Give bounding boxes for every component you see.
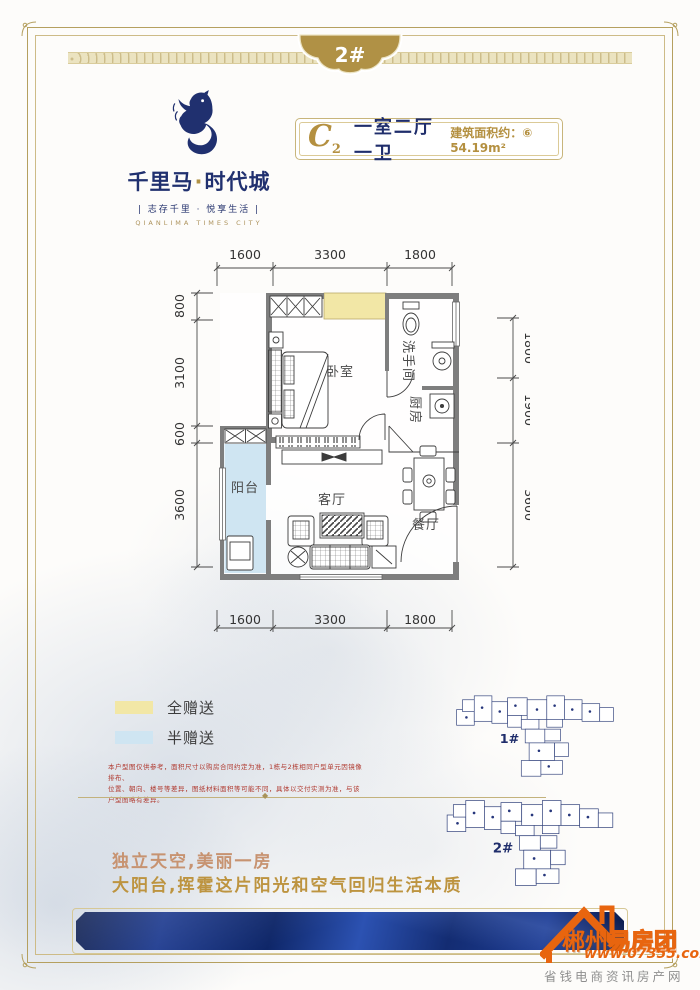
horse-logo-icon xyxy=(170,90,228,158)
legend-swatch-half xyxy=(115,731,153,744)
watermark-url: www.07355.com xyxy=(584,946,700,962)
floorplan: 1600 3300 1800 1600 3300 1800 800 3100 6… xyxy=(160,240,530,650)
siteplan-label-2: 2# xyxy=(493,841,514,856)
dim-bottom-3: 1800 xyxy=(404,612,436,627)
brand-name-english: QIANLIMA TIMES CITY xyxy=(118,219,280,227)
tagline-line-1: 独立天空,美丽一房 xyxy=(112,847,272,872)
unit-title-plaque: C2 一室二厅一卫 建筑面积约：⑥ 54.19m² xyxy=(295,118,563,160)
room-label-dining: 餐厅 xyxy=(412,517,440,533)
room-label-bedroom: 卧室 xyxy=(326,364,354,380)
watermark-slogan: 省钱电商资讯房产网 xyxy=(544,966,684,985)
frame-corner-ornament xyxy=(21,21,37,37)
siteplan-building-1: 1# xyxy=(452,688,620,786)
dim-left-3: 600 xyxy=(172,422,187,446)
badge-label: 2# xyxy=(335,43,366,67)
disclaimer-text: 本户型图仅供参考，面积尺寸以购房合同约定为准，1栋与2栋相同户型单元因镜像排布、… xyxy=(108,762,366,806)
room-label-balcony: 阳台 xyxy=(231,481,259,496)
dim-bottom-1: 1600 xyxy=(229,612,261,627)
dim-bottom-2: 3300 xyxy=(314,612,346,627)
legend-item-half: 半赠送 xyxy=(115,727,215,748)
brand-slogan: | 志存千里 · 悦享生活 | xyxy=(118,202,280,215)
frame-corner-ornament xyxy=(663,21,679,37)
building-number-badge: 2# xyxy=(297,34,403,80)
siteplan-building-2: 2# xyxy=(443,792,619,896)
room-label-bath: 洗手间 xyxy=(400,340,415,382)
dim-left-2: 3100 xyxy=(172,357,187,389)
dim-left-1: 800 xyxy=(172,294,187,318)
divider-ornament: ◆ xyxy=(262,791,268,800)
dim-top-1: 1600 xyxy=(229,247,261,262)
legend-item-full: 全赠送 xyxy=(115,697,215,718)
gold-divider-line xyxy=(78,797,546,798)
brand-name-dot: · xyxy=(194,170,205,194)
room-label-living: 客厅 xyxy=(318,492,346,508)
unit-layout: 一室二厅一卫 xyxy=(354,113,438,165)
sliding-door-track xyxy=(276,436,360,448)
legend-swatch-full xyxy=(115,701,153,714)
dim-right-1: 1800 xyxy=(522,332,530,364)
dim-top-2: 3300 xyxy=(314,247,346,262)
dim-top-3: 1800 xyxy=(404,247,436,262)
dim-right-3: 3600 xyxy=(522,489,530,521)
brand-logo: 千里马·时代城 | 志存千里 · 悦享生活 | QIANLIMA TIMES C… xyxy=(118,90,280,227)
frame-corner-ornament xyxy=(21,953,37,969)
unit-area: 建筑面积约：⑥ 54.19m² xyxy=(450,124,550,155)
gift-full-bay-window xyxy=(324,293,386,319)
brand-name: 千里马·时代城 xyxy=(118,166,280,196)
unit-code: C2 xyxy=(308,122,341,156)
brand-name-right: 时代城 xyxy=(204,170,270,194)
legend-label-full: 全赠送 xyxy=(167,697,215,718)
flyer-page: { "badge": { "label": "2#" }, "logo": { … xyxy=(0,0,700,990)
legend-label-half: 半赠送 xyxy=(167,727,215,748)
room-label-kitchen: 厨房 xyxy=(407,396,423,424)
disclaimer-line-1: 本户型图仅供参考，面积尺寸以购房合同约定为准，1栋与2栋相同户型单元因镜像排布、 xyxy=(108,762,366,784)
bedroom-furniture xyxy=(269,296,329,428)
disclaimer-line-2: 位置、朝向、楼号等差异，图纸材料面积等可能不同，具体以交付实测为准，与该户型图略… xyxy=(108,784,366,806)
dim-left-4: 3600 xyxy=(172,489,187,521)
dim-right-2: 1900 xyxy=(522,394,530,426)
brand-name-left: 千里马 xyxy=(128,170,194,194)
gift-legend: 全赠送 半赠送 xyxy=(115,697,215,757)
tagline-line-2: 大阳台,挥霍这片阳光和空气回归生活本质 xyxy=(112,871,462,896)
siteplan-label-1: 1# xyxy=(500,732,520,747)
